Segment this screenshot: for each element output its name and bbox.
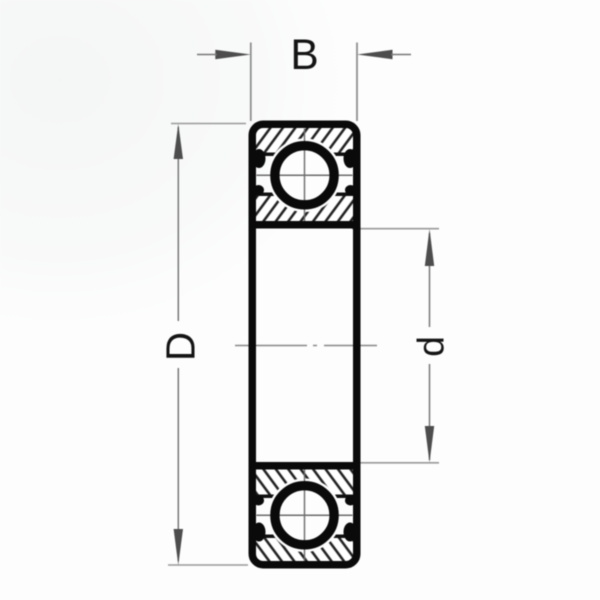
svg-text:D: D [157, 332, 203, 361]
svg-text:d: d [411, 336, 452, 357]
svg-text:B: B [290, 32, 318, 79]
